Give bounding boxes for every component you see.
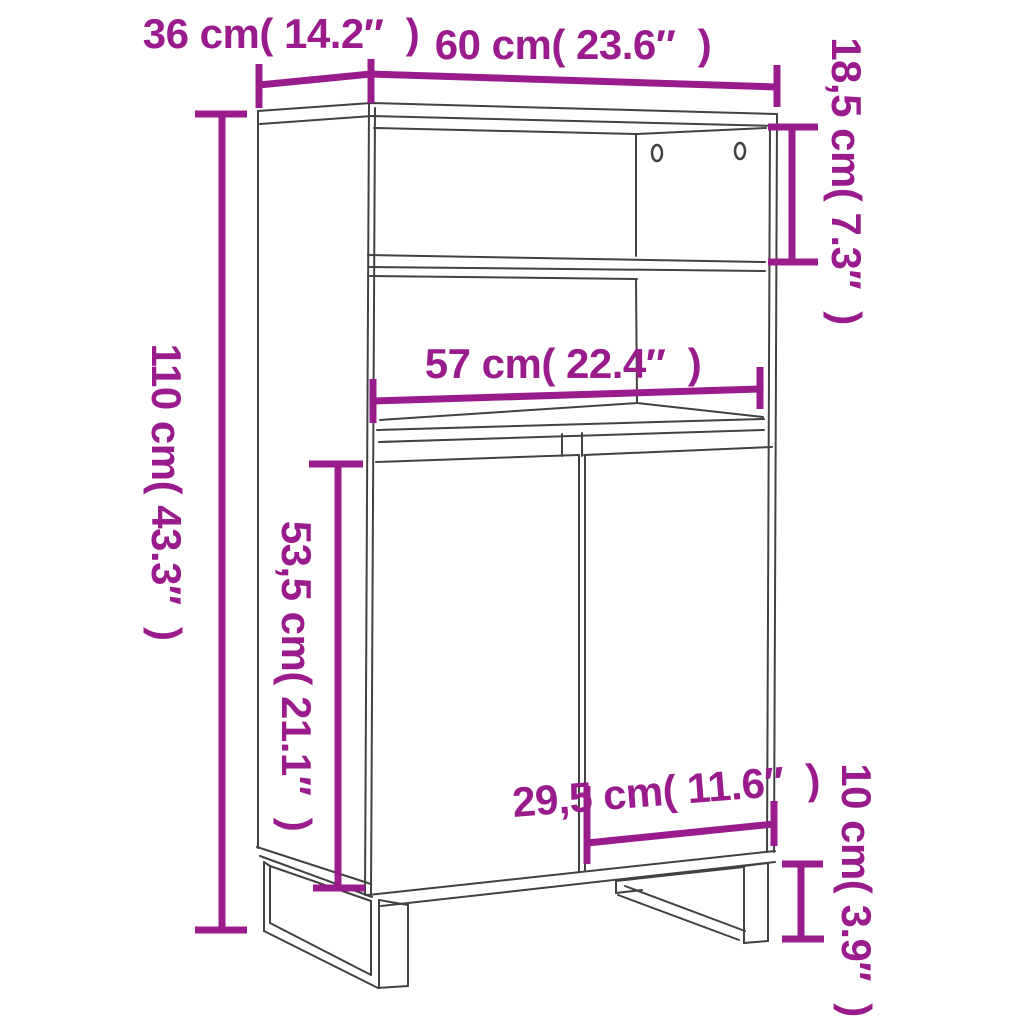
left-door-top bbox=[376, 455, 578, 462]
right-outer-edge bbox=[774, 114, 777, 852]
dimension-label-inner-width: 57 cm( 22.4″ ) bbox=[425, 340, 701, 388]
hole-left bbox=[652, 145, 662, 161]
front-left-edge-a bbox=[365, 104, 369, 895]
shelf-under-line bbox=[370, 276, 637, 279]
top-panel-ridge bbox=[258, 103, 777, 114]
right-inner-edge bbox=[767, 127, 770, 852]
right-door-top bbox=[584, 447, 772, 455]
bottom-front-edge bbox=[368, 851, 775, 895]
dimension-diagram: 36 cm( 14.2″ ) 60 cm( 23.6″ ) 18,5 cm( 7… bbox=[0, 0, 1024, 1024]
right-leg bbox=[616, 863, 768, 943]
dimension-label-width: 60 cm( 23.6″ ) bbox=[435, 21, 711, 69]
dimension-line-total-height bbox=[195, 114, 247, 930]
platform-front-bottom bbox=[379, 430, 764, 442]
shelf-top-edge bbox=[368, 255, 765, 262]
dimension-label-total-height: 110 cm( 43.3″ ) bbox=[142, 344, 190, 641]
dimension-label-depth: 36 cm( 14.2″ ) bbox=[143, 10, 419, 58]
dimension-label-leg-height: 10 cm( 3.9″ ) bbox=[832, 763, 880, 1017]
top-compartment-ceiling bbox=[374, 128, 766, 134]
dimension-line-width bbox=[371, 65, 777, 107]
back-panel-holes bbox=[652, 143, 745, 161]
top-panel-underedge bbox=[260, 116, 777, 126]
hole-right bbox=[735, 143, 745, 159]
dimension-label-top-section: 18,5 cm( 7.3″ ) bbox=[822, 37, 870, 325]
front-left-edge-b bbox=[371, 108, 375, 896]
platform-back-left bbox=[380, 403, 637, 420]
platform-back-right bbox=[637, 403, 763, 417]
side-bottom-edge-a bbox=[257, 847, 371, 884]
shelf-bottom-edge bbox=[369, 267, 765, 271]
platform-front-top bbox=[377, 419, 764, 430]
dimension-line-leg-height bbox=[782, 864, 824, 939]
dimension-label-door-height: 53,5 cm( 21.1″ ) bbox=[272, 521, 320, 831]
dimension-line-depth bbox=[259, 59, 371, 108]
